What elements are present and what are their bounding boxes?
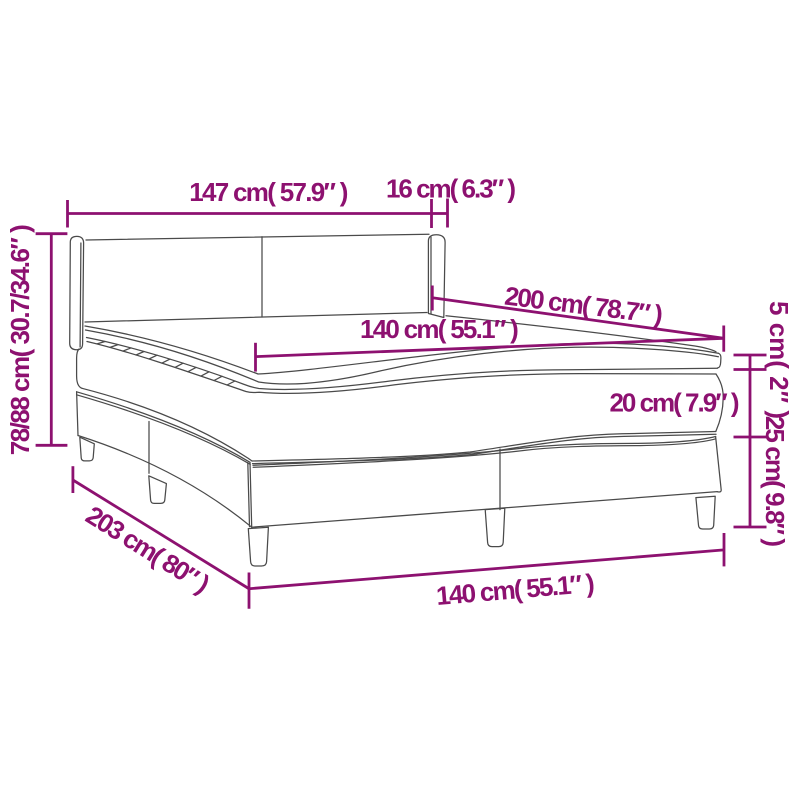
svg-text:16 cm( 6.3″ ): 16 cm( 6.3″ ) [386, 174, 515, 204]
svg-text:5 cm( 2″ ): 5 cm( 2″ ) [764, 301, 794, 419]
svg-text:140 cm( 55.1″ ): 140 cm( 55.1″ ) [360, 314, 518, 344]
svg-text:20 cm( 7.9″ ): 20 cm( 7.9″ ) [609, 388, 738, 418]
svg-text:25 cm( 9.8″ ): 25 cm( 9.8″ ) [760, 416, 790, 547]
svg-text:78/88 cm( 30.7/34.6″ ): 78/88 cm( 30.7/34.6″ ) [5, 225, 35, 455]
svg-text:147 cm( 57.9″ ): 147 cm( 57.9″ ) [189, 177, 348, 207]
